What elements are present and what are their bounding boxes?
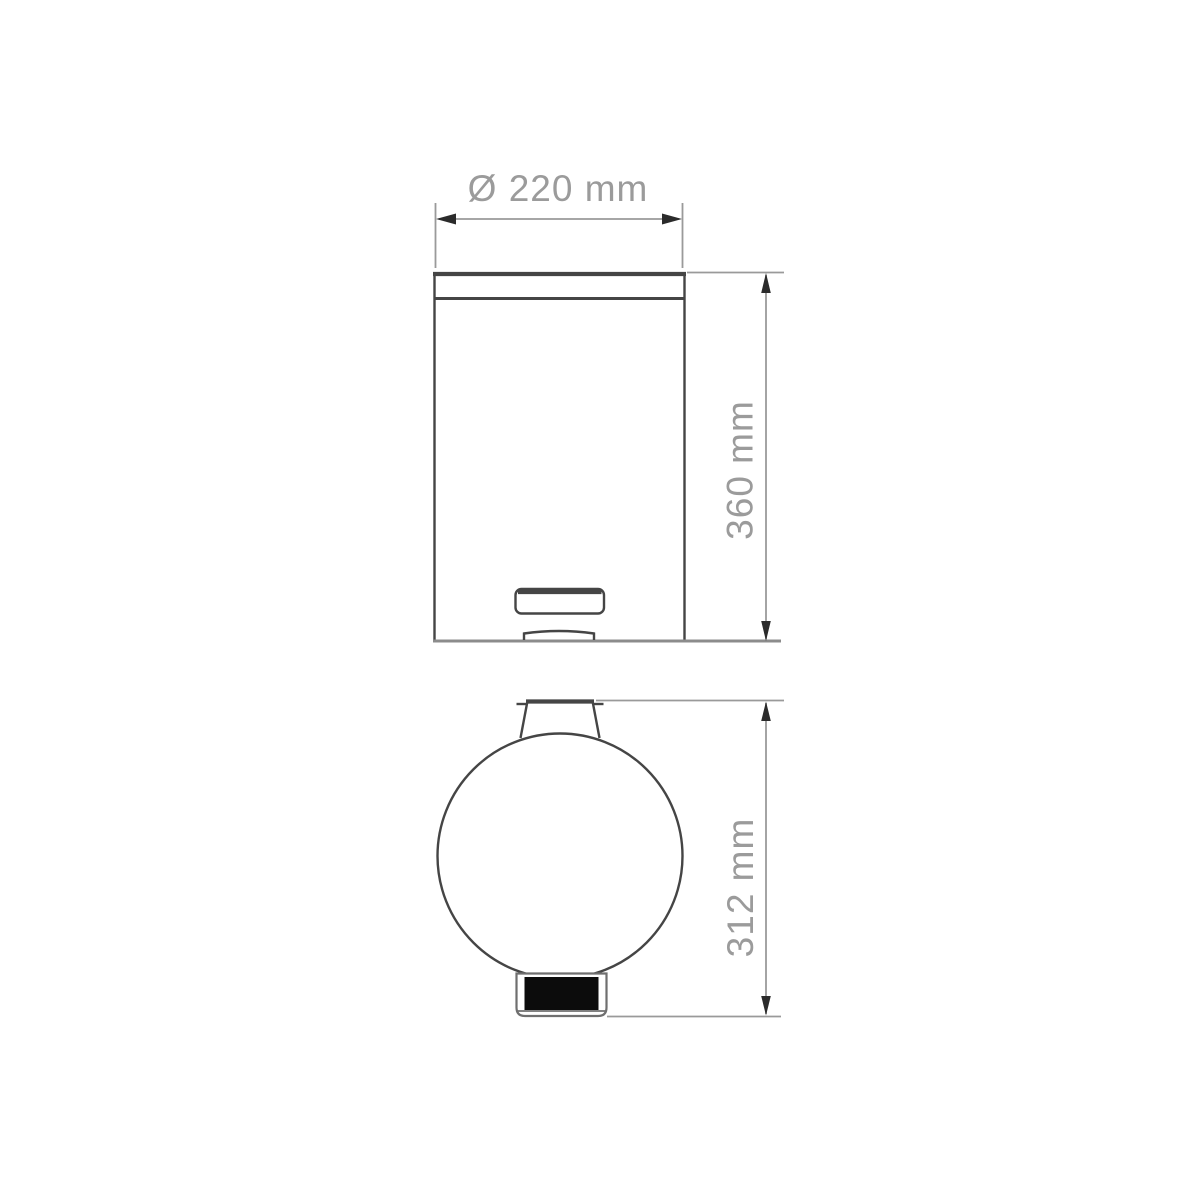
diameter-label: Ø 220 mm (468, 168, 649, 209)
height-label: 360 mm (720, 400, 761, 540)
drawing-page: Ø 220 mm 360 mm (0, 0, 1200, 1200)
hinge-leg-left (521, 701, 528, 738)
arrowhead-right-icon (662, 214, 682, 225)
pedal-front (516, 589, 605, 640)
depth-dimension: 312 mm (596, 701, 784, 1017)
hinge-leg-right (593, 701, 600, 738)
depth-label: 312 mm (720, 818, 761, 958)
diameter-dimension: Ø 220 mm (436, 168, 683, 268)
arrowhead-down-icon (761, 621, 771, 641)
bin-body-circle (438, 734, 683, 979)
pedal-top-view (517, 974, 607, 1017)
pedal-base-front (524, 631, 594, 640)
arrowhead-up-icon (761, 702, 771, 722)
arrowhead-up-icon (761, 273, 771, 293)
top-view (438, 701, 683, 1016)
arrowhead-left-icon (436, 214, 456, 225)
height-dimension: 360 mm (687, 273, 784, 642)
arrowhead-down-icon (761, 996, 771, 1016)
technical-drawing: Ø 220 mm 360 mm (0, 0, 1200, 1200)
pedal-pad-top (525, 977, 599, 1010)
